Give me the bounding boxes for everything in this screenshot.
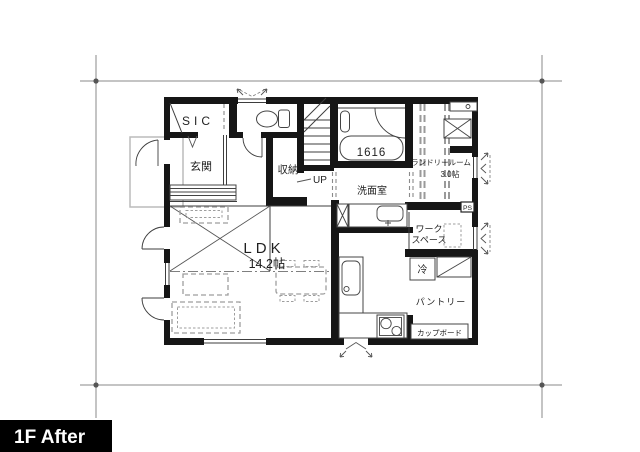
grid-marker xyxy=(539,382,544,387)
fridge-label: 冷 xyxy=(418,263,428,276)
screenshot-root: SIC 玄関 収納 UP 1616 洗面室 ランドリールーム 3.0帖 PS ワ… xyxy=(0,0,640,452)
grid-marker xyxy=(539,78,544,83)
sofa xyxy=(172,302,240,333)
workspace-label-line2: スペース xyxy=(412,235,447,245)
shuno-label: 収納 xyxy=(278,163,299,176)
senmen-label: 洗面室 xyxy=(357,184,387,197)
floor-plan: SIC 玄関 収納 UP 1616 洗面室 ランドリールーム 3.0帖 PS ワ… xyxy=(0,0,640,452)
washbasin xyxy=(349,204,407,227)
ldk-label: LDK xyxy=(243,240,284,257)
workspace-label-line1: ワーク xyxy=(415,224,442,234)
grid-marker xyxy=(93,78,98,83)
walls xyxy=(164,97,478,345)
shower-head xyxy=(338,108,405,132)
toilet-fixture xyxy=(257,110,290,128)
stove xyxy=(377,315,404,338)
laundry-poles xyxy=(421,104,450,200)
tv-board xyxy=(180,207,228,223)
up-label: UP xyxy=(313,175,327,186)
pantry-shelf xyxy=(437,257,471,277)
sic-label: SIC xyxy=(182,114,214,128)
ldk-size-label: 14.2帖 xyxy=(249,256,286,271)
coffee-table xyxy=(183,274,228,295)
laundry-label: ランドリールーム xyxy=(411,158,471,167)
pantry-label: パントリー xyxy=(416,297,466,307)
linen-shelf xyxy=(337,204,348,227)
tub-size-label: 1616 xyxy=(357,147,387,159)
washer-pan xyxy=(444,119,471,138)
floor-badge: 1F After xyxy=(0,420,112,452)
laundry-size-label: 3.0帖 xyxy=(440,169,459,179)
laundry-vent xyxy=(450,102,477,111)
floor-badge-label: 1F After xyxy=(14,427,86,448)
ps-label: PS xyxy=(463,205,473,212)
cupboard-label: カップボード xyxy=(417,329,462,338)
genkan-label: 玄関 xyxy=(190,159,212,173)
grid-marker xyxy=(93,382,98,387)
